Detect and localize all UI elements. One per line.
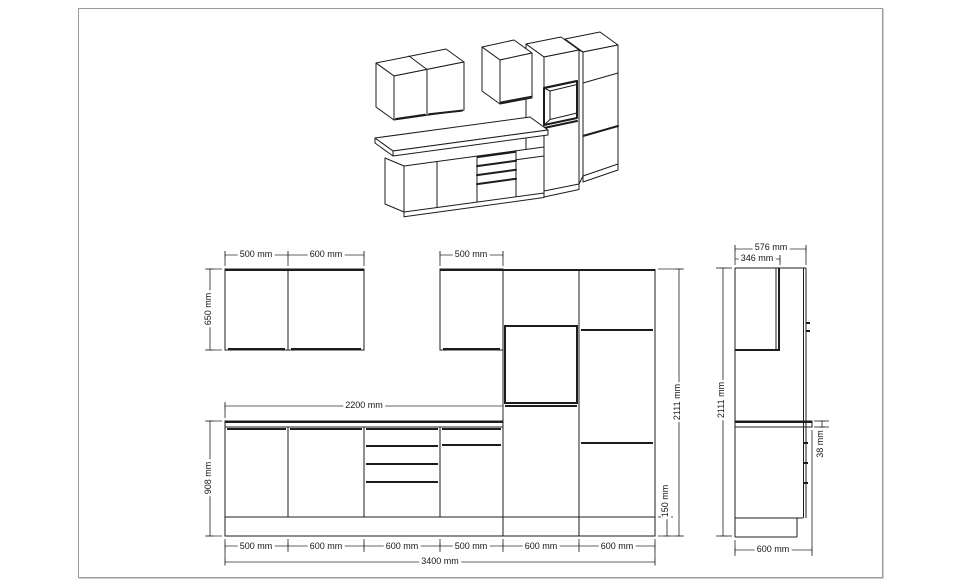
iso-base-run — [375, 117, 548, 217]
dim-label-total-width: 3400 mm — [419, 557, 461, 567]
kitchen-technical-drawing: 500 mm 600 mm 500 mm 650 mm 2200 mm 908 … — [0, 0, 960, 587]
oven-niche — [505, 326, 577, 403]
dim-label-base-height: 908 mm — [204, 460, 214, 497]
isometric-view — [375, 32, 618, 217]
dim-label-total-height-front: 2111 mm — [673, 382, 683, 422]
dim-label-side-depth: 576 mm — [753, 243, 790, 253]
side-view — [735, 268, 812, 537]
iso-wall-cabinet-left — [376, 49, 464, 120]
wall-cabinet-pair — [225, 269, 364, 350]
dim-label-bottom-4: 500 mm — [453, 542, 490, 552]
dim-label-wall-width-3: 500 mm — [453, 250, 490, 260]
dim-label-side-wall-depth: 346 mm — [739, 254, 776, 264]
dim-label-wall-height: 650 mm — [204, 291, 214, 328]
dim-label-bottom-3: 600 mm — [384, 542, 421, 552]
iso-wall-cabinet-middle — [482, 40, 532, 104]
wall-cabinet-middle — [440, 269, 503, 350]
dim-label-counter-thickness: 38 mm — [816, 428, 826, 460]
iso-side-step — [579, 50, 583, 184]
dim-label-total-height-side: 2111 mm — [717, 380, 727, 420]
front-elevation — [225, 269, 655, 536]
drawing-linework — [0, 0, 960, 587]
dim-label-side-base-depth: 600 mm — [755, 545, 792, 555]
dim-label-bottom-2: 600 mm — [308, 542, 345, 552]
dim-label-plinth-height: 150 mm — [661, 483, 671, 520]
dim-label-bottom-1: 500 mm — [238, 542, 275, 552]
dim-label-counter-length: 2200 mm — [343, 401, 385, 411]
dim-label-bottom-6: 600 mm — [599, 542, 636, 552]
dim-label-bottom-5: 600 mm — [523, 542, 560, 552]
dim-label-wall-width-1: 500 mm — [238, 250, 275, 260]
plinth — [225, 517, 655, 536]
dim-label-wall-width-2: 600 mm — [308, 250, 345, 260]
